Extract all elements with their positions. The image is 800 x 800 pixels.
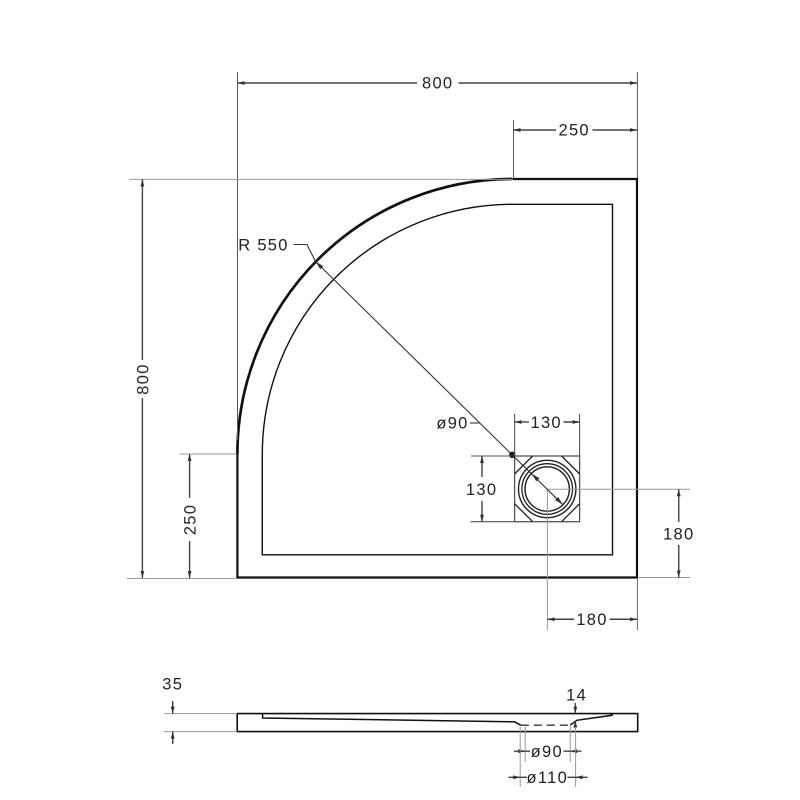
svg-text:35: 35 bbox=[162, 675, 183, 693]
svg-text:130: 130 bbox=[530, 414, 561, 432]
svg-text:800: 800 bbox=[134, 363, 152, 394]
svg-text:250: 250 bbox=[558, 122, 589, 140]
svg-text:ø90: ø90 bbox=[531, 743, 563, 761]
svg-text:14: 14 bbox=[566, 687, 587, 705]
svg-text:130: 130 bbox=[466, 481, 497, 499]
svg-text:R 550: R 550 bbox=[238, 236, 289, 254]
svg-text:180: 180 bbox=[663, 525, 694, 543]
svg-text:800: 800 bbox=[422, 75, 453, 93]
svg-text:ø90: ø90 bbox=[436, 415, 468, 433]
svg-text:180: 180 bbox=[576, 611, 607, 629]
svg-text:250: 250 bbox=[181, 504, 199, 535]
svg-text:ø110: ø110 bbox=[527, 769, 569, 787]
